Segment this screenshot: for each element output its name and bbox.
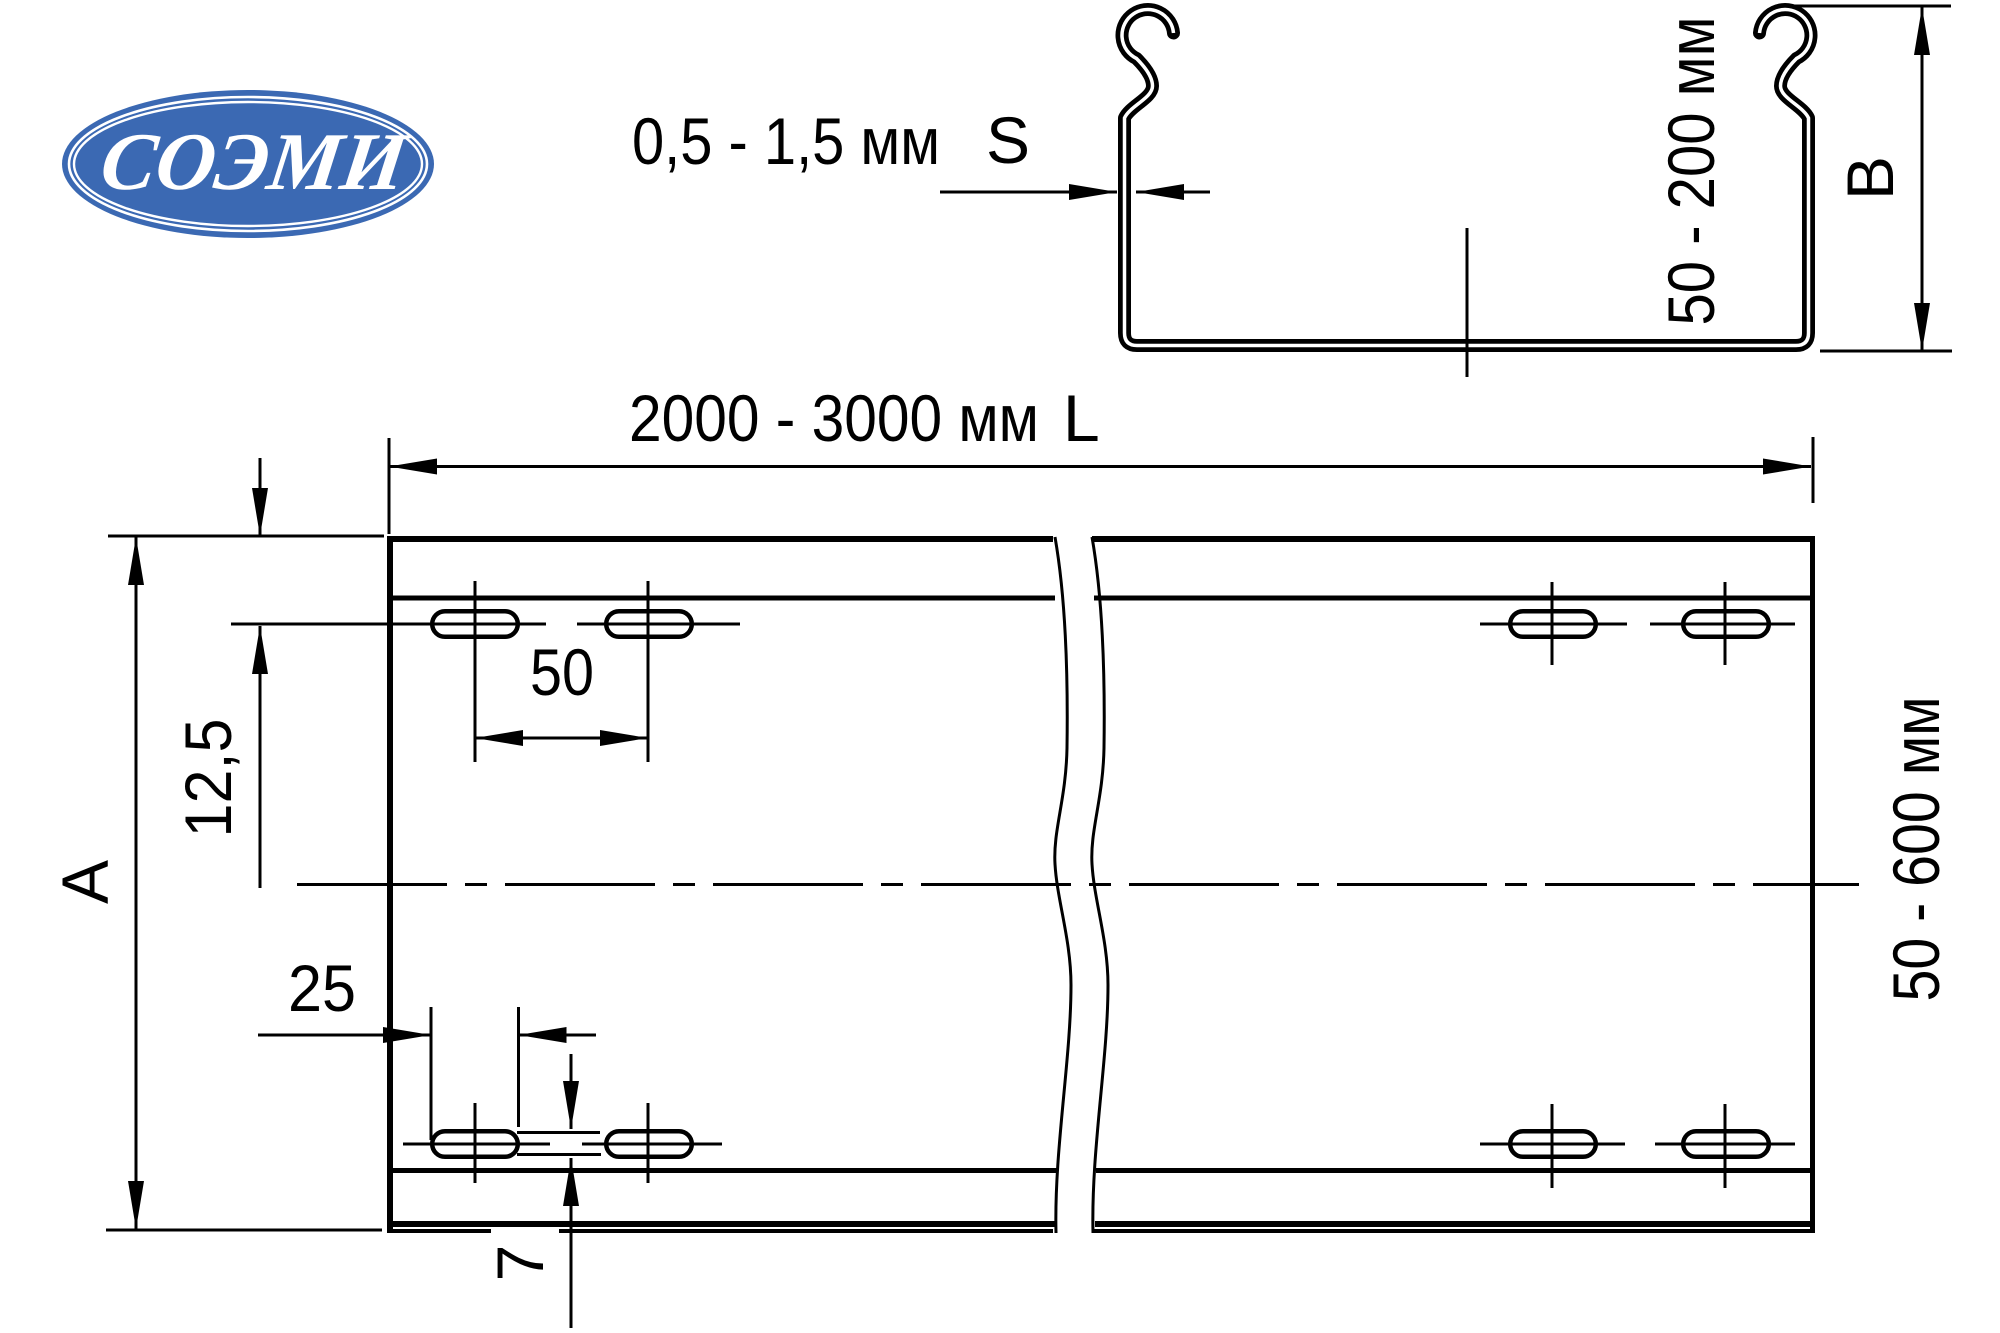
svg-text:7: 7 xyxy=(483,1245,557,1282)
svg-text:12,5: 12,5 xyxy=(171,719,245,838)
svg-text:СОЭМИ: СОЭМИ xyxy=(96,116,416,207)
svg-text:B: B xyxy=(1833,156,1907,200)
svg-text:A: A xyxy=(48,860,122,904)
svg-text:50 - 600 мм: 50 - 600 мм xyxy=(1879,697,1953,1002)
svg-text:S: S xyxy=(986,103,1030,177)
svg-text:50 - 200 мм: 50 - 200 мм xyxy=(1654,17,1728,326)
svg-text:2000 - 3000 мм: 2000 - 3000 мм xyxy=(629,381,1039,455)
svg-text:0,5 - 1,5 мм: 0,5 - 1,5 мм xyxy=(632,104,940,178)
svg-text:25: 25 xyxy=(288,951,356,1025)
svg-text:L: L xyxy=(1063,381,1100,455)
svg-text:50: 50 xyxy=(530,635,594,709)
